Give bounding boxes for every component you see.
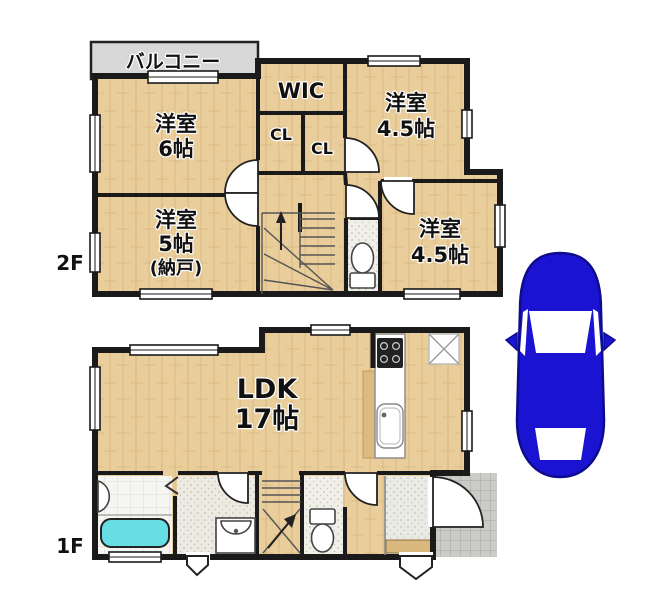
- room45-upper-size: 4.5帖: [377, 117, 435, 141]
- room45-lower-name: 洋室: [419, 217, 461, 241]
- floorplan-image: バルコニー 洋室 6帖 WIC CL CL 洋室 4.5帖 洋室 5帖 (納戸)…: [0, 0, 646, 591]
- closet-b-label: CL: [311, 139, 333, 158]
- room6-name: 洋室: [155, 112, 197, 136]
- faucet-icon: [382, 413, 387, 418]
- floor2-label: 2F: [56, 251, 84, 275]
- room45-upper-name: 洋室: [385, 91, 427, 115]
- car-windshield: [529, 311, 592, 353]
- genkan-step-board: [386, 540, 432, 553]
- room5-name: 洋室: [155, 208, 197, 232]
- wic-label: WIC: [278, 79, 324, 103]
- kitchen-counter-edge: [363, 371, 375, 458]
- toilet-1f-fixture: [310, 509, 335, 552]
- bathtub: [101, 519, 169, 547]
- ldk-size: 17帖: [235, 404, 300, 435]
- floor-1f-plan: LDK 17帖 1F: [56, 325, 497, 579]
- balcony-label: バルコニー: [126, 51, 221, 73]
- entrance-marker-icon: [400, 556, 432, 579]
- room5-size: 5帖: [158, 232, 194, 256]
- washroom-basin: [216, 518, 255, 553]
- car-rear-window: [535, 428, 586, 460]
- car-topview: [506, 253, 615, 477]
- room6-size: 6帖: [158, 137, 194, 161]
- floor-2f-plan: バルコニー 洋室 6帖 WIC CL CL 洋室 4.5帖 洋室 5帖 (納戸)…: [56, 42, 505, 299]
- closet-a-label: CL: [270, 125, 292, 144]
- room5-note: (納戸): [150, 257, 202, 279]
- floor1-label: 1F: [56, 534, 84, 558]
- floorplan-page: バルコニー 洋室 6帖 WIC CL CL 洋室 4.5帖 洋室 5帖 (納戸)…: [0, 0, 646, 591]
- car-mirror-right: [604, 333, 615, 350]
- room45-lower-size: 4.5帖: [411, 243, 469, 267]
- stove: [377, 338, 403, 368]
- toilet-2f-fixture: [350, 243, 375, 288]
- backdoor-marker-icon: [187, 556, 208, 575]
- car-mirror-left: [506, 333, 517, 350]
- ldk-name: LDK: [237, 374, 299, 405]
